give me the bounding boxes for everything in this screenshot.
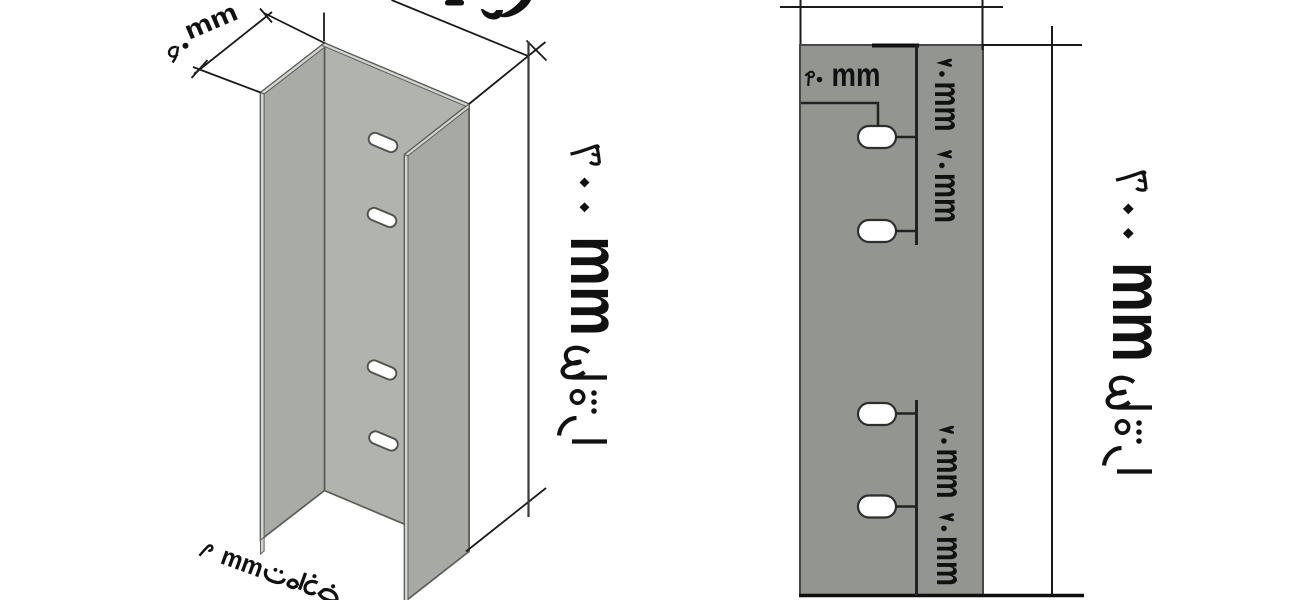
svg-text:mm: mm — [556, 236, 634, 336]
svg-text:mm: mm — [1097, 262, 1177, 362]
svg-text:mm: mm — [832, 56, 881, 93]
